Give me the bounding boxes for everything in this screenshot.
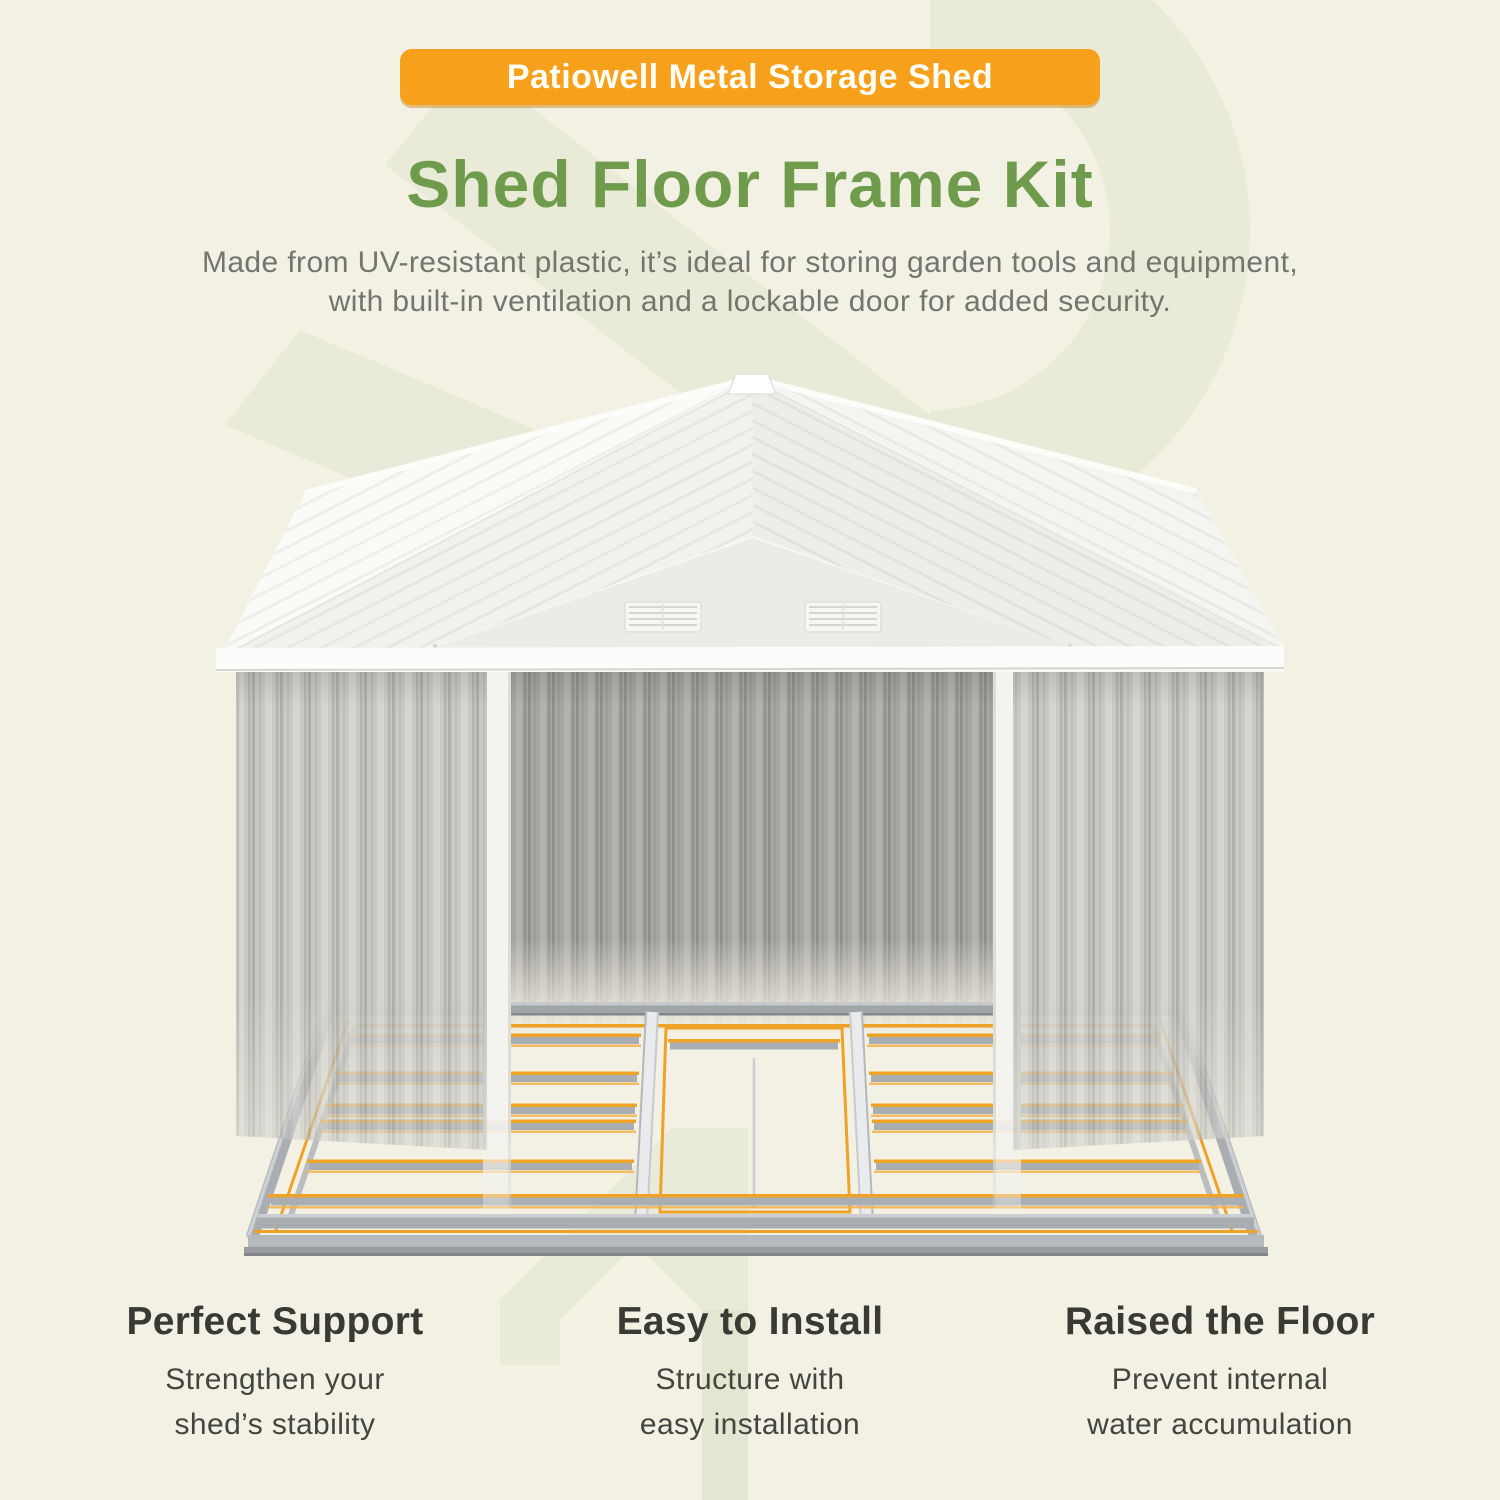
page-title: Shed Floor Frame Kit xyxy=(0,146,1500,222)
description: Made from UV-resistant plastic, it’s ide… xyxy=(0,243,1500,321)
shed-illustration xyxy=(0,0,1500,1500)
roof-peak-cap xyxy=(728,374,776,394)
description-line-1: Made from UV-resistant plastic, it’s ide… xyxy=(0,243,1500,282)
floor-frame-front-rails xyxy=(244,1194,1268,1256)
feature-text-line: Structure with xyxy=(540,1357,960,1402)
feature-text-line: Strengthen your xyxy=(55,1357,495,1402)
feature-text-line: Prevent internal xyxy=(985,1357,1455,1402)
description-line-2: with built-in ventilation and a lockable… xyxy=(0,282,1500,321)
feature-text-line: easy installation xyxy=(540,1402,960,1447)
brand-badge: Patiowell Metal Storage Shed xyxy=(400,49,1100,105)
feature-title: Easy to Install xyxy=(540,1300,960,1344)
shed-right-wall xyxy=(1013,662,1264,1150)
feature-text-line: shed’s stability xyxy=(55,1402,495,1447)
gable-vent-left xyxy=(625,602,701,632)
feature-title: Raised the Floor xyxy=(985,1300,1455,1344)
shed-left-wall xyxy=(236,662,487,1150)
infographic-canvas: Patiowell Metal Storage Shed Shed Floor … xyxy=(0,0,1500,1500)
feature-easy-to-install: Easy to Install Structure with easy inst… xyxy=(540,1300,960,1447)
feature-raised-the-floor: Raised the Floor Prevent internal water … xyxy=(985,1300,1455,1447)
feature-perfect-support: Perfect Support Strengthen your shed’s s… xyxy=(55,1300,495,1447)
feature-title: Perfect Support xyxy=(55,1300,495,1344)
shed-interior-back-wall xyxy=(505,662,999,1034)
brand-badge-label: Patiowell Metal Storage Shed xyxy=(507,58,993,96)
gable-vent-right xyxy=(805,602,881,632)
feature-text-line: water accumulation xyxy=(985,1402,1455,1447)
